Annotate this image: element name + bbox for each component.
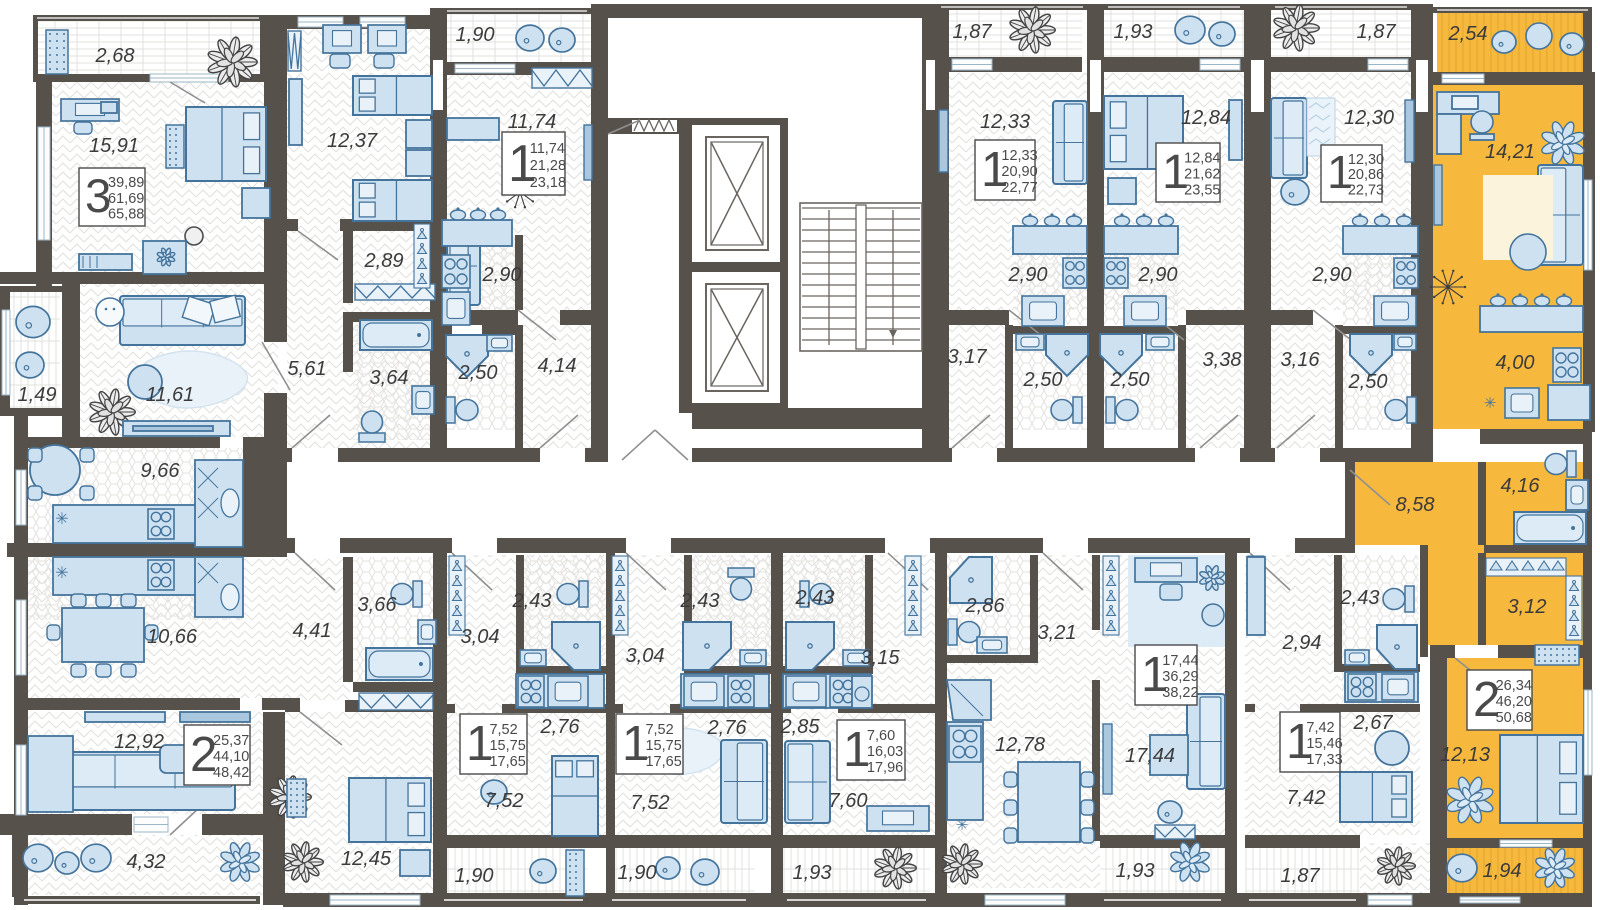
svg-text:7,52: 7,52 <box>485 790 524 812</box>
svg-text:17,33: 17,33 <box>1306 752 1342 768</box>
svg-text:22,73: 22,73 <box>1348 183 1384 199</box>
svg-text:12,84: 12,84 <box>1181 107 1231 129</box>
svg-text:3,16: 3,16 <box>1281 349 1321 371</box>
svg-text:3,66: 3,66 <box>358 594 398 616</box>
svg-text:2,50: 2,50 <box>1023 369 1063 391</box>
svg-text:44,10: 44,10 <box>213 749 249 765</box>
svg-text:3,12: 3,12 <box>1508 596 1547 618</box>
svg-text:1,94: 1,94 <box>1483 860 1522 882</box>
svg-text:2,43: 2,43 <box>1340 587 1380 609</box>
svg-text:12,45: 12,45 <box>341 848 392 870</box>
svg-text:8,58: 8,58 <box>1396 494 1435 516</box>
svg-text:26,34: 26,34 <box>1496 678 1532 694</box>
svg-text:2,68: 2,68 <box>95 45 135 67</box>
svg-text:7,42: 7,42 <box>1306 720 1334 736</box>
svg-text:16,03: 16,03 <box>867 744 903 760</box>
svg-text:15,91: 15,91 <box>89 135 139 157</box>
svg-text:12,30: 12,30 <box>1344 107 1394 129</box>
svg-text:7,60: 7,60 <box>867 728 895 744</box>
svg-text:17,65: 17,65 <box>645 754 681 770</box>
svg-text:✳: ✳ <box>1484 395 1497 412</box>
svg-text:1,87: 1,87 <box>1357 21 1397 43</box>
svg-text:2,90: 2,90 <box>482 264 522 286</box>
svg-text:1,90: 1,90 <box>455 865 494 887</box>
svg-text:65,88: 65,88 <box>108 206 144 222</box>
svg-text:2,90: 2,90 <box>1312 264 1352 286</box>
svg-text:9,66: 9,66 <box>141 460 181 482</box>
svg-text:4,00: 4,00 <box>1496 352 1535 374</box>
svg-text:23,18: 23,18 <box>530 175 566 191</box>
svg-text:12,37: 12,37 <box>327 130 378 152</box>
svg-text:1,93: 1,93 <box>1116 860 1155 882</box>
svg-text:15,75: 15,75 <box>645 738 681 754</box>
svg-text:✳: ✳ <box>956 817 969 834</box>
svg-text:1,93: 1,93 <box>793 862 832 884</box>
svg-text:4,14: 4,14 <box>538 355 577 377</box>
svg-text:22,77: 22,77 <box>1001 180 1037 196</box>
svg-text:25,37: 25,37 <box>213 733 249 749</box>
svg-text:2,54: 2,54 <box>1448 23 1488 45</box>
svg-text:3,21: 3,21 <box>1038 622 1077 644</box>
svg-text:2,67: 2,67 <box>1353 712 1394 734</box>
svg-text:3,04: 3,04 <box>461 626 500 648</box>
svg-text:2,90: 2,90 <box>1138 264 1178 286</box>
svg-text:1,87: 1,87 <box>953 21 993 43</box>
svg-text:2,50: 2,50 <box>458 362 498 384</box>
svg-text:17,44: 17,44 <box>1162 653 1198 669</box>
svg-text:7,42: 7,42 <box>1287 787 1326 809</box>
svg-text:12,78: 12,78 <box>995 734 1045 756</box>
svg-text:11,74: 11,74 <box>530 141 565 157</box>
svg-text:4,32: 4,32 <box>127 851 166 873</box>
svg-text:46,20: 46,20 <box>1496 694 1532 710</box>
svg-text:36,29: 36,29 <box>1162 669 1198 685</box>
svg-text:11,61: 11,61 <box>146 384 195 406</box>
svg-text:39,89: 39,89 <box>108 175 144 191</box>
svg-text:4,16: 4,16 <box>1501 475 1541 497</box>
svg-text:3,17: 3,17 <box>948 346 988 368</box>
svg-text:14,21: 14,21 <box>1485 141 1535 163</box>
svg-text:17,65: 17,65 <box>489 754 525 770</box>
svg-text:7,52: 7,52 <box>645 722 673 738</box>
svg-text:1,49: 1,49 <box>18 384 57 406</box>
svg-text:17,96: 17,96 <box>867 760 903 776</box>
svg-text:12,30: 12,30 <box>1348 152 1384 168</box>
svg-text:7,52: 7,52 <box>631 792 670 814</box>
svg-text:12,33: 12,33 <box>1001 148 1037 164</box>
svg-text:2,76: 2,76 <box>707 717 748 739</box>
svg-text:61,69: 61,69 <box>108 191 144 207</box>
svg-text:2,86: 2,86 <box>965 595 1006 617</box>
svg-text:2,94: 2,94 <box>1282 632 1322 654</box>
svg-text:4,41: 4,41 <box>293 620 332 642</box>
svg-text:20,86: 20,86 <box>1348 167 1384 183</box>
svg-text:12,13: 12,13 <box>1440 744 1490 766</box>
svg-text:1,93: 1,93 <box>1114 21 1153 43</box>
svg-text:21,28: 21,28 <box>530 158 566 174</box>
svg-text:2,50: 2,50 <box>1110 369 1150 391</box>
svg-text:2,50: 2,50 <box>1348 371 1388 393</box>
svg-text:11,74: 11,74 <box>508 111 557 133</box>
svg-text:2,90: 2,90 <box>1008 264 1048 286</box>
svg-text:7,60: 7,60 <box>829 790 868 812</box>
svg-text:1,87: 1,87 <box>1281 865 1321 887</box>
svg-text:17,44: 17,44 <box>1125 745 1175 767</box>
svg-text:2,43: 2,43 <box>680 590 720 612</box>
svg-text:2,76: 2,76 <box>540 716 581 738</box>
svg-text:3,64: 3,64 <box>370 367 409 389</box>
svg-text:2,89: 2,89 <box>364 250 404 272</box>
svg-text:✳: ✳ <box>55 511 68 528</box>
svg-text:21,62: 21,62 <box>1184 166 1220 182</box>
svg-text:5,61: 5,61 <box>288 358 327 380</box>
svg-text:2,85: 2,85 <box>780 716 821 738</box>
svg-text:20,90: 20,90 <box>1001 164 1037 180</box>
svg-text:48,42: 48,42 <box>213 765 249 781</box>
svg-text:15,75: 15,75 <box>489 738 525 754</box>
svg-text:2,43: 2,43 <box>512 590 552 612</box>
svg-text:2,43: 2,43 <box>795 587 835 609</box>
svg-text:50,68: 50,68 <box>1496 710 1532 726</box>
svg-text:23,55: 23,55 <box>1184 182 1220 198</box>
svg-text:1,90: 1,90 <box>456 24 495 46</box>
svg-text:1,90: 1,90 <box>618 862 657 884</box>
svg-text:7,52: 7,52 <box>489 722 517 738</box>
svg-text:15,46: 15,46 <box>1306 736 1342 752</box>
svg-text:3,38: 3,38 <box>1203 349 1242 371</box>
svg-text:✳: ✳ <box>55 565 68 582</box>
svg-text:12,33: 12,33 <box>980 111 1030 133</box>
svg-text:12,84: 12,84 <box>1184 150 1220 166</box>
svg-text:3,04: 3,04 <box>626 645 665 667</box>
svg-text:3,15: 3,15 <box>861 647 901 669</box>
svg-text:38,22: 38,22 <box>1162 685 1198 701</box>
svg-text:12,92: 12,92 <box>114 731 164 753</box>
svg-text:10,66: 10,66 <box>147 626 198 648</box>
